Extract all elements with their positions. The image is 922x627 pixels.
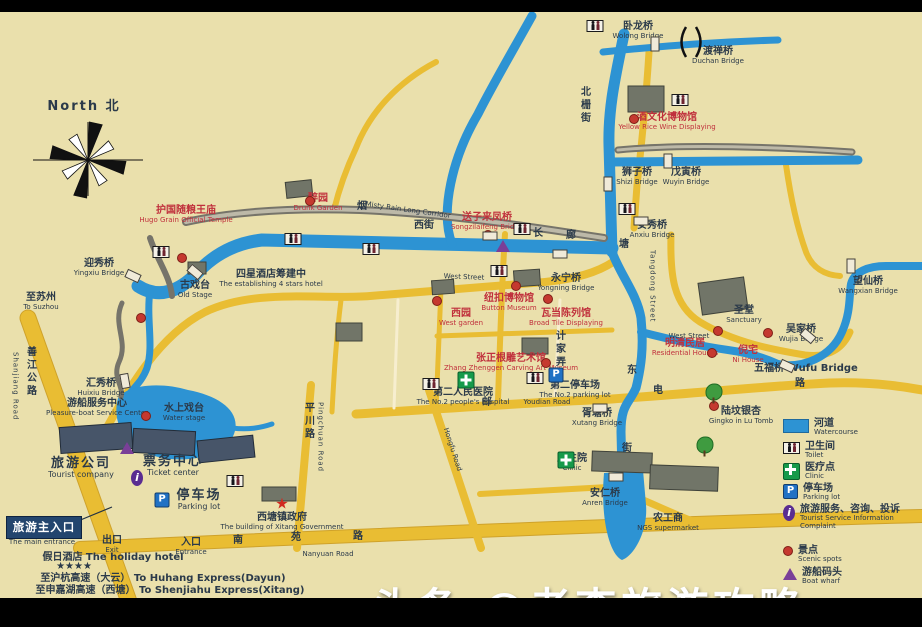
building-block [698,277,748,315]
building-block [262,487,296,501]
building-block [592,451,653,473]
building-block [336,323,362,341]
top-letterbox-bar [0,0,922,12]
building-block [59,423,133,454]
building-block [513,269,540,287]
main-entrance-badge: 旅游主入口 [6,516,82,539]
building-block [628,86,664,112]
roads [28,52,922,627]
map-base-graphics [0,0,922,627]
building-block [188,262,206,274]
building-block [432,279,455,295]
building-block [522,338,548,354]
bottom-letterbox-bar [0,598,922,627]
building-block [285,180,313,199]
building-block [132,428,195,455]
screenshot-stage: 卧龙桥Wolong Bridge渡禅桥Duchan Bridge酒文化博物馆Ye… [0,0,922,627]
compass-rose-icon [33,122,143,198]
misty-rain-corridor [117,146,852,397]
building-block [650,465,719,491]
